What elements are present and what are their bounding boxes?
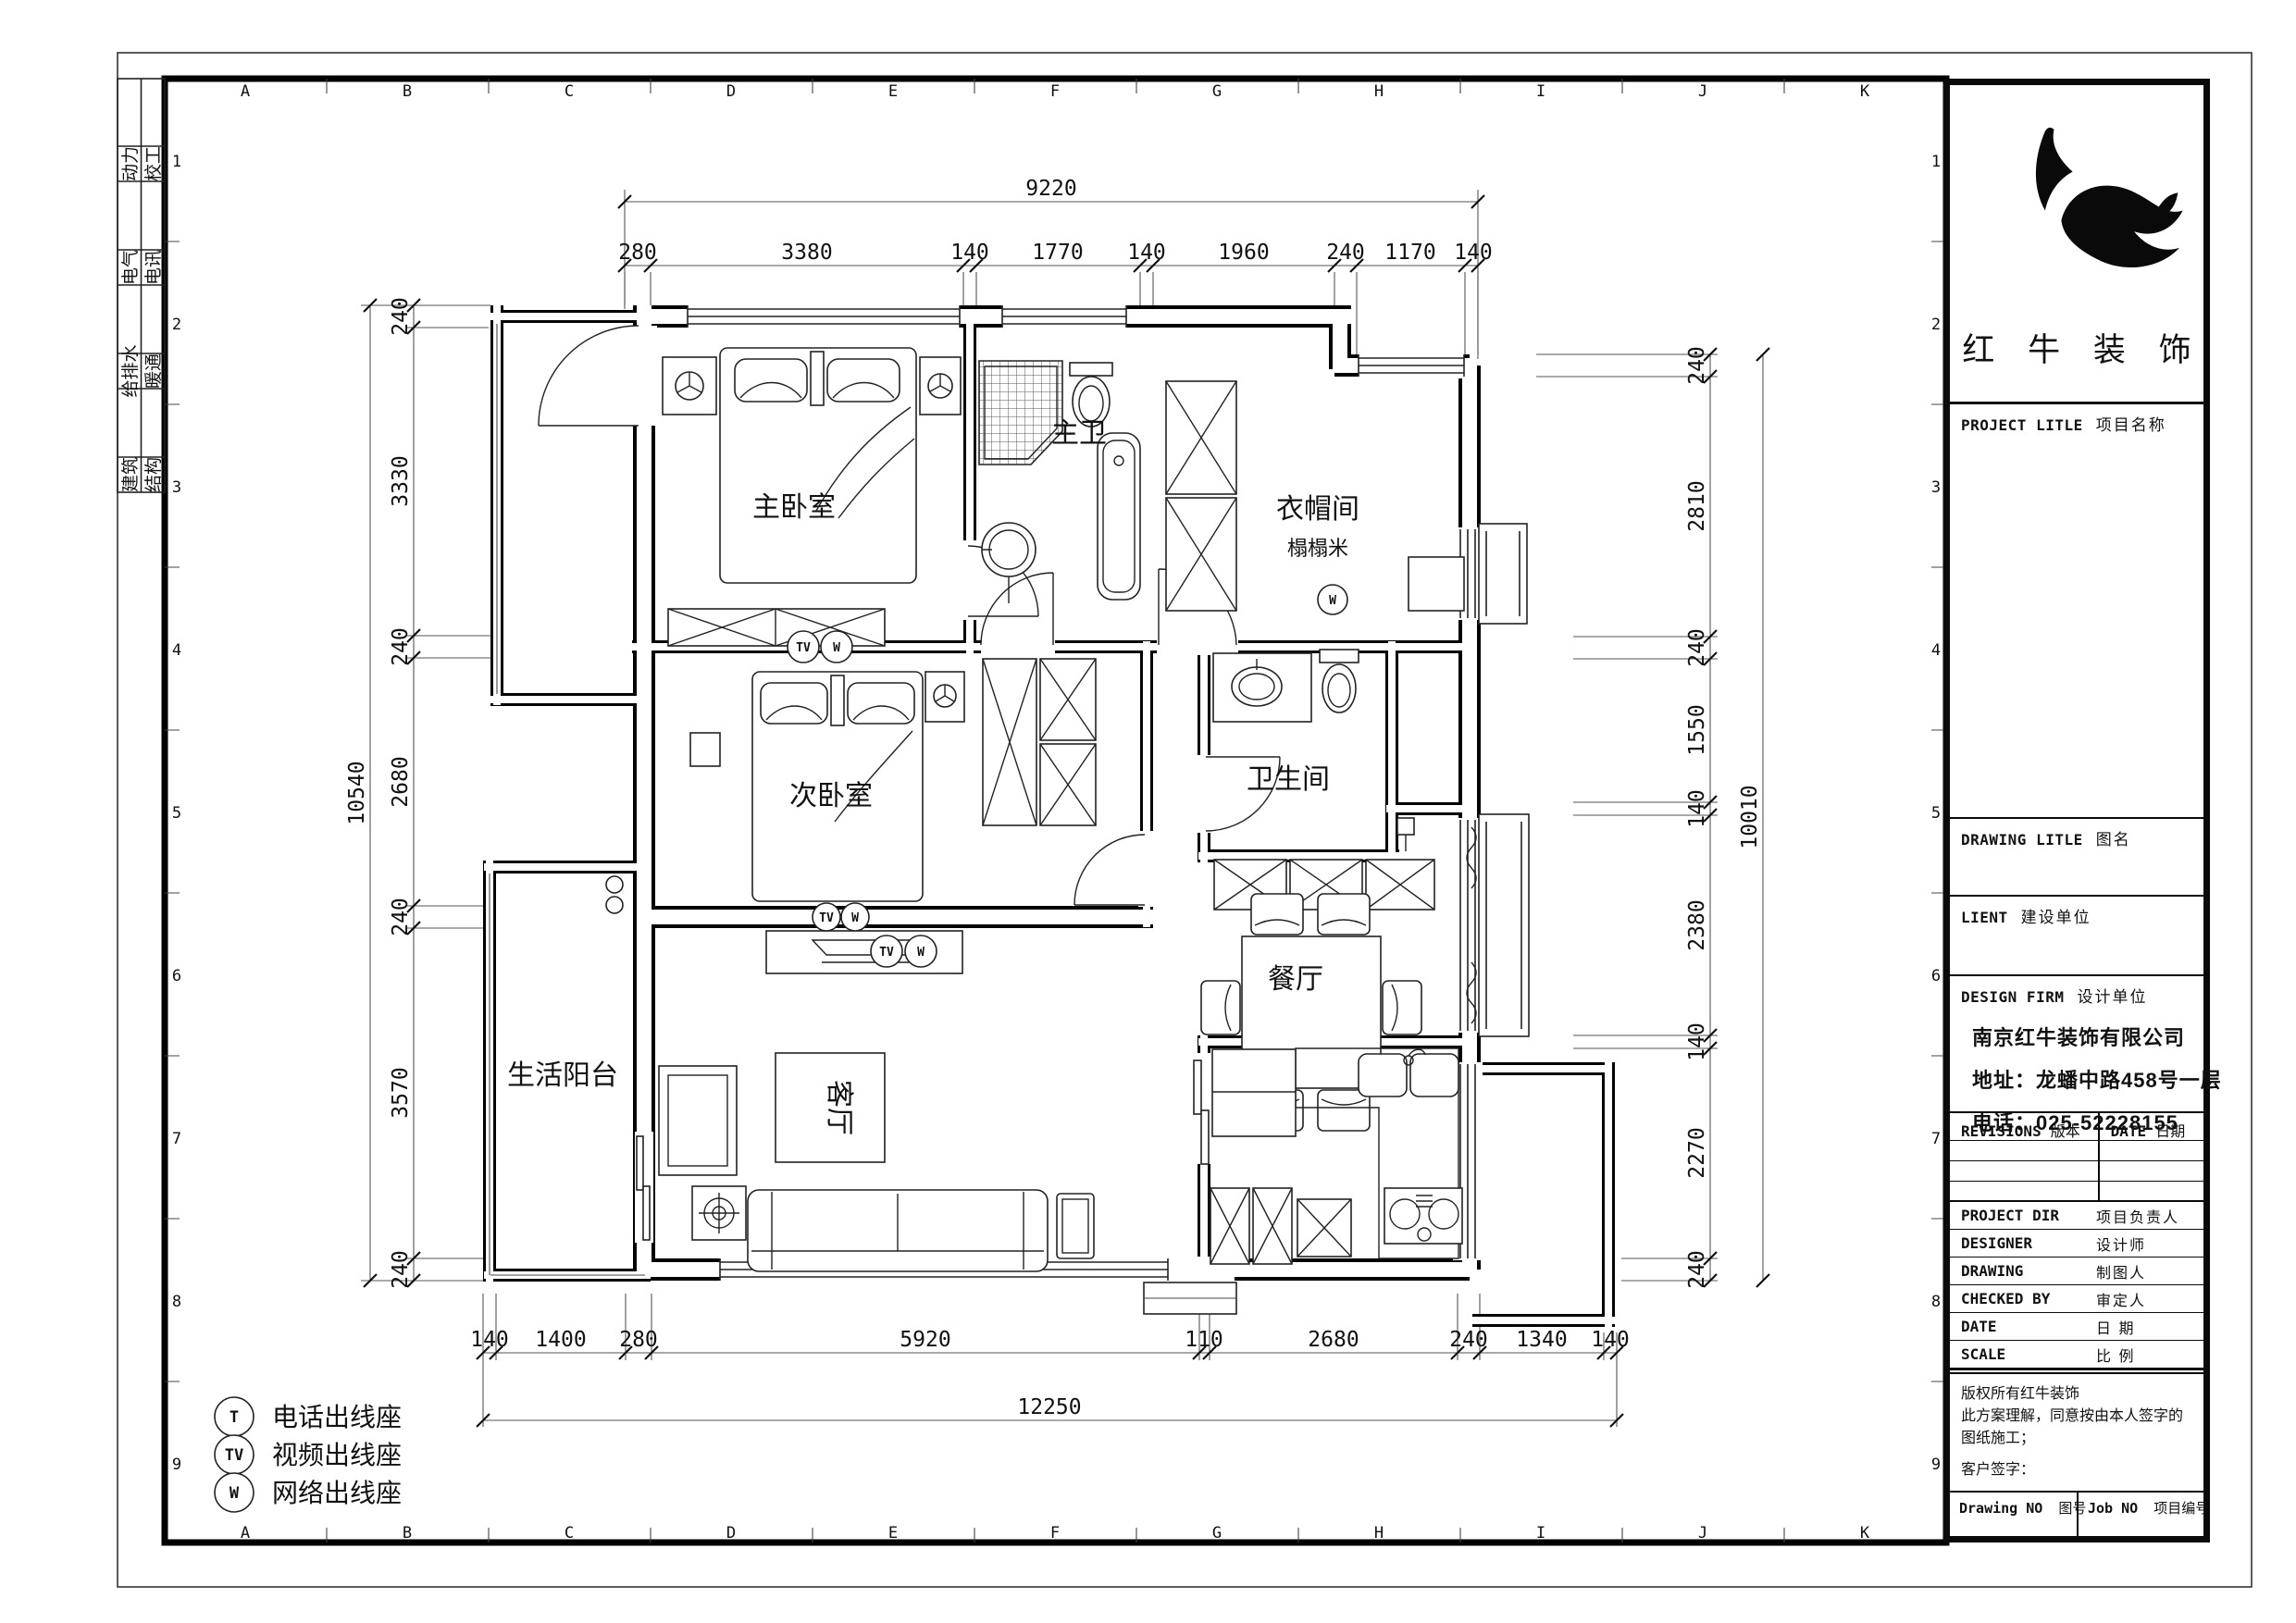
legend-label: 视频出线座 — [272, 1441, 402, 1469]
dim-left-seg: 240 — [389, 297, 413, 336]
design-firm-section: DESIGN FIRM设计单位 南京红牛装饰有限公司 地址：龙蟠中路458号一层… — [1950, 976, 2203, 1113]
legend: T 电话出线座 TV 视频出线座 W 网络出线座 — [215, 1397, 402, 1512]
project-dir-row: PROJECT DIR 项目负责人 — [1950, 1202, 2203, 1230]
grid-number: 4 — [172, 641, 181, 660]
dim-top-seg: 140 — [1127, 241, 1166, 265]
project-title-section: PROJECT LITLE项目名称 — [1950, 404, 2203, 819]
dim-right-seg: 140 — [1685, 789, 1709, 828]
grid-number: 1 — [1931, 153, 1941, 171]
dim-bottom-overall: 12250 — [1017, 1395, 1081, 1419]
checked-by-row: CHECKED BY 审定人 — [1950, 1285, 2203, 1313]
design-firm-label-zh: 设计单位 — [2077, 988, 2147, 1006]
drafter-row: DRAWING 制图人 — [1950, 1258, 2203, 1285]
grid-number: 8 — [1931, 1293, 1941, 1311]
grid-number: 2 — [172, 316, 181, 334]
project-dir-label-en: PROJECT DIR — [1950, 1207, 2096, 1224]
dim-left-seg: 2680 — [389, 756, 413, 807]
drawing-title-section: DRAWING LITLE图名 — [1950, 819, 2203, 897]
grid-letter: E — [888, 1524, 898, 1542]
tv-outlet-icon: TV — [879, 946, 894, 960]
dim-right-seg: 2810 — [1685, 480, 1709, 531]
grid-letter: K — [1860, 1524, 1870, 1542]
company-logo-area: 红 牛 装 饰 — [1950, 85, 2203, 404]
grid-letters-top: A B C D E F G H I J K — [241, 79, 1870, 101]
grid-number: 1 — [172, 153, 181, 171]
designer-label-en: DESIGNER — [1950, 1234, 2096, 1252]
dim-top-seg: 1170 — [1384, 241, 1435, 265]
grid-number: 2 — [1931, 316, 1941, 334]
design-firm-label-en: DESIGN FIRM — [1961, 988, 2064, 1006]
revision-cell — [1950, 1141, 2100, 1161]
copyright-line1: 版权所有红牛装饰 — [1961, 1383, 2192, 1406]
designer-label-zh: 设计师 — [2096, 1233, 2146, 1255]
grid-letter: A — [241, 1524, 250, 1542]
living-room-furniture — [659, 931, 1094, 1271]
grid-number: 7 — [172, 1130, 181, 1148]
client-label-zh: 建设单位 — [2021, 909, 2091, 926]
room-label-second-bedroom: 次卧室 — [789, 781, 873, 811]
room-label-tatami: 榻榻米 — [1287, 537, 1348, 560]
revisions-table: REVISIONS版本 DATE日期 — [1950, 1113, 2203, 1202]
job-no-cell: Job NO 项目编号 — [2077, 1493, 2203, 1536]
revision-cell — [2100, 1161, 2203, 1182]
drawing-no-label-en: Drawing NO — [1959, 1500, 2042, 1517]
dim-bottom-seg: 1340 — [1516, 1328, 1567, 1352]
discipline-label: 校工 — [143, 146, 164, 181]
second-bedroom-furniture — [690, 659, 1096, 901]
dim-top-seg: 3380 — [781, 241, 832, 265]
discipline-label: 建筑 — [120, 457, 141, 492]
room-label-bathroom: 卫生间 — [1247, 764, 1330, 795]
discipline-label: 电讯 — [143, 250, 164, 285]
dim-left-overall: 10540 — [345, 761, 369, 824]
grid-letter: E — [888, 82, 898, 101]
job-no-label-en: Job NO — [2088, 1500, 2138, 1517]
dim-right-seg: 2270 — [1685, 1127, 1709, 1178]
grid-letter: J — [1698, 1524, 1707, 1542]
dim-left-seg: 3330 — [389, 455, 413, 506]
scale-row: SCALE 比 例 — [1950, 1341, 2203, 1369]
grid-letter: G — [1212, 82, 1222, 101]
rednow-bull-icon — [1961, 117, 2192, 311]
dim-right-seg: 140 — [1685, 1022, 1709, 1061]
dim-top-seg: 140 — [1454, 241, 1493, 265]
dim-left-seg: 240 — [389, 627, 413, 666]
discipline-label: 动力 — [120, 146, 141, 181]
grid-letter: B — [403, 82, 412, 101]
dim-top-seg: 140 — [950, 241, 989, 265]
network-outlet-icon: W — [833, 641, 840, 655]
dim-bottom-seg: 140 — [1591, 1328, 1630, 1352]
scale-label-en: SCALE — [1950, 1345, 2096, 1363]
dim-right-seg: 240 — [1685, 1250, 1709, 1289]
master-bath-furniture — [979, 361, 1140, 603]
drawing-title-label-zh: 图名 — [2096, 831, 2131, 849]
dim-top-seg: 240 — [1326, 241, 1365, 265]
grid-letter: H — [1374, 1524, 1384, 1542]
room-label-dining: 餐厅 — [1268, 964, 1323, 995]
designer-row: DESIGNER 设计师 — [1950, 1230, 2203, 1258]
dim-top-seg: 1770 — [1032, 241, 1083, 265]
firm-address: 地址：龙蟠中路458号一层 — [1972, 1064, 2194, 1094]
copyright-line2: 此方案理解，同意按由本人签字的图纸施工； — [1961, 1406, 2192, 1450]
drafter-label-en: DRAWING — [1950, 1262, 2096, 1280]
dim-bottom-seg: 2680 — [1308, 1328, 1359, 1352]
grid-letter: G — [1212, 1524, 1222, 1542]
grid-number: 4 — [1931, 641, 1941, 660]
revision-cell — [1950, 1161, 2100, 1182]
grid-number: 9 — [1931, 1456, 1941, 1474]
grid-letter: I — [1536, 82, 1545, 101]
grid-number: 8 — [172, 1293, 181, 1311]
date-label-zh: 日 期 — [2096, 1316, 2135, 1338]
firm-name: 南京红牛装饰有限公司 — [1972, 1022, 2194, 1051]
discipline-strip: 动力 校工 电气 电讯 给排水 暖通 建筑 结构 — [118, 79, 165, 492]
job-no-label-zh: 项目编号 — [2153, 1501, 2209, 1517]
grid-letter: B — [403, 1524, 412, 1542]
checked-by-label-en: CHECKED BY — [1950, 1290, 2096, 1307]
grid-letter: F — [1050, 82, 1060, 101]
grid-letter: C — [565, 1524, 574, 1542]
grid-letter: J — [1698, 82, 1707, 101]
grid-number: 3 — [172, 478, 181, 497]
dim-right-seg: 2380 — [1685, 899, 1709, 950]
revisions-label-en: REVISIONS — [1961, 1122, 2042, 1140]
room-label-master-bedroom: 主卧室 — [752, 492, 836, 523]
dim-left-seg: 240 — [389, 898, 413, 936]
grid-number: 7 — [1931, 1130, 1941, 1148]
dim-bottom-seg: 280 — [619, 1328, 658, 1352]
client-label-en: LIENT — [1961, 909, 2008, 926]
grid-number: 6 — [1931, 967, 1941, 985]
date-col-label-zh: 日期 — [2155, 1124, 2185, 1140]
dim-top-seg: 1960 — [1218, 241, 1269, 265]
dim-right-seg: 1550 — [1685, 704, 1709, 755]
grid-number: 3 — [1931, 478, 1941, 497]
title-block: 红 牛 装 饰 PROJECT LITLE项目名称 DRAWING LITLE图… — [1943, 79, 2210, 1542]
dim-right-overall: 10010 — [1738, 785, 1762, 849]
company-name: 红 牛 装 饰 — [1950, 324, 2203, 371]
project-label-en: PROJECT LITLE — [1961, 416, 2083, 434]
legend-symbol-w: W — [230, 1484, 240, 1503]
dim-bottom-seg: 240 — [1449, 1328, 1488, 1352]
revisions-label-zh: 版本 — [2051, 1124, 2080, 1140]
legend-label: 网络出线座 — [272, 1479, 402, 1507]
discipline-label: 结构 — [143, 457, 164, 492]
legend-symbol-tv: TV — [225, 1446, 243, 1465]
grid-number: 5 — [1931, 804, 1941, 823]
dim-left-seg: 3570 — [389, 1067, 413, 1118]
discipline-label: 电气 — [120, 250, 141, 285]
drawing-no-cell: Drawing NO 图号 — [1950, 1493, 2077, 1536]
grid-letter: D — [726, 82, 736, 101]
date-col-label-en: DATE — [2111, 1122, 2147, 1140]
grid-number: 5 — [172, 804, 181, 823]
network-outlet-icon: W — [917, 946, 925, 960]
dim-bottom-seg: 5920 — [900, 1328, 950, 1352]
room-label-balcony: 生活阳台 — [507, 1060, 618, 1091]
drafter-label-zh: 制图人 — [2096, 1260, 2146, 1282]
grid-letter: D — [726, 1524, 736, 1542]
dim-top-overall: 9220 — [1025, 177, 1076, 201]
grid-letter: H — [1374, 82, 1384, 101]
legend-symbol-t: T — [230, 1408, 239, 1427]
grid-number: 6 — [172, 967, 181, 985]
dim-top-seg: 280 — [618, 241, 657, 265]
network-outlet-icon: W — [1329, 594, 1336, 608]
checked-by-label-zh: 审定人 — [2096, 1288, 2146, 1310]
revision-cell — [1950, 1182, 2100, 1202]
tv-outlet-icon: TV — [819, 911, 834, 925]
dim-bottom-seg: 140 — [470, 1328, 509, 1352]
drawing-title-label-en: DRAWING LITLE — [1961, 831, 2083, 849]
number-section: Drawing NO 图号 Job NO 项目编号 — [1950, 1493, 2203, 1536]
dim-bottom-seg: 1400 — [535, 1328, 586, 1352]
dim-left-seg: 240 — [389, 1250, 413, 1289]
project-label-zh: 项目名称 — [2096, 416, 2166, 434]
dim-right-seg: 240 — [1685, 346, 1709, 385]
network-outlet-icon: W — [851, 911, 859, 925]
discipline-label: 暖通 — [143, 353, 164, 389]
grid-letter: C — [565, 82, 574, 101]
revision-cell — [2100, 1141, 2203, 1161]
room-label-master-bath: 主卫 — [1051, 418, 1107, 449]
revision-cell — [2100, 1182, 2203, 1202]
project-dir-label-zh: 项目负责人 — [2096, 1205, 2179, 1227]
grid-letter: A — [241, 82, 250, 101]
grid-letter: K — [1860, 82, 1870, 101]
discipline-label: 给排水 — [120, 344, 141, 397]
client-signature-label: 客户签字： — [1961, 1459, 2192, 1481]
room-label-living: 客厅 — [824, 1080, 854, 1135]
date-label-en: DATE — [1950, 1318, 2096, 1335]
tv-outlet-icon: TV — [796, 641, 811, 655]
date-row: DATE 日 期 — [1950, 1313, 2203, 1341]
grid-letter: I — [1536, 1524, 1545, 1542]
client-section: LIENT建设单位 — [1950, 897, 2203, 976]
grid-number: 9 — [172, 1456, 181, 1474]
grid-letter: F — [1050, 1524, 1060, 1542]
dim-right-seg: 240 — [1685, 628, 1709, 667]
signature-section: 版权所有红牛装饰 此方案理解，同意按由本人签字的图纸施工； 客户签字： — [1950, 1374, 2203, 1493]
room-label-cloakroom: 衣帽间 — [1276, 494, 1359, 525]
legend-label: 电话出线座 — [272, 1403, 402, 1431]
dim-bottom-seg: 110 — [1185, 1328, 1223, 1352]
scale-label-zh: 比 例 — [2096, 1344, 2135, 1366]
drawing-sheet: A B C D E F G H I J K A B C D E F G H I … — [0, 0, 2296, 1623]
